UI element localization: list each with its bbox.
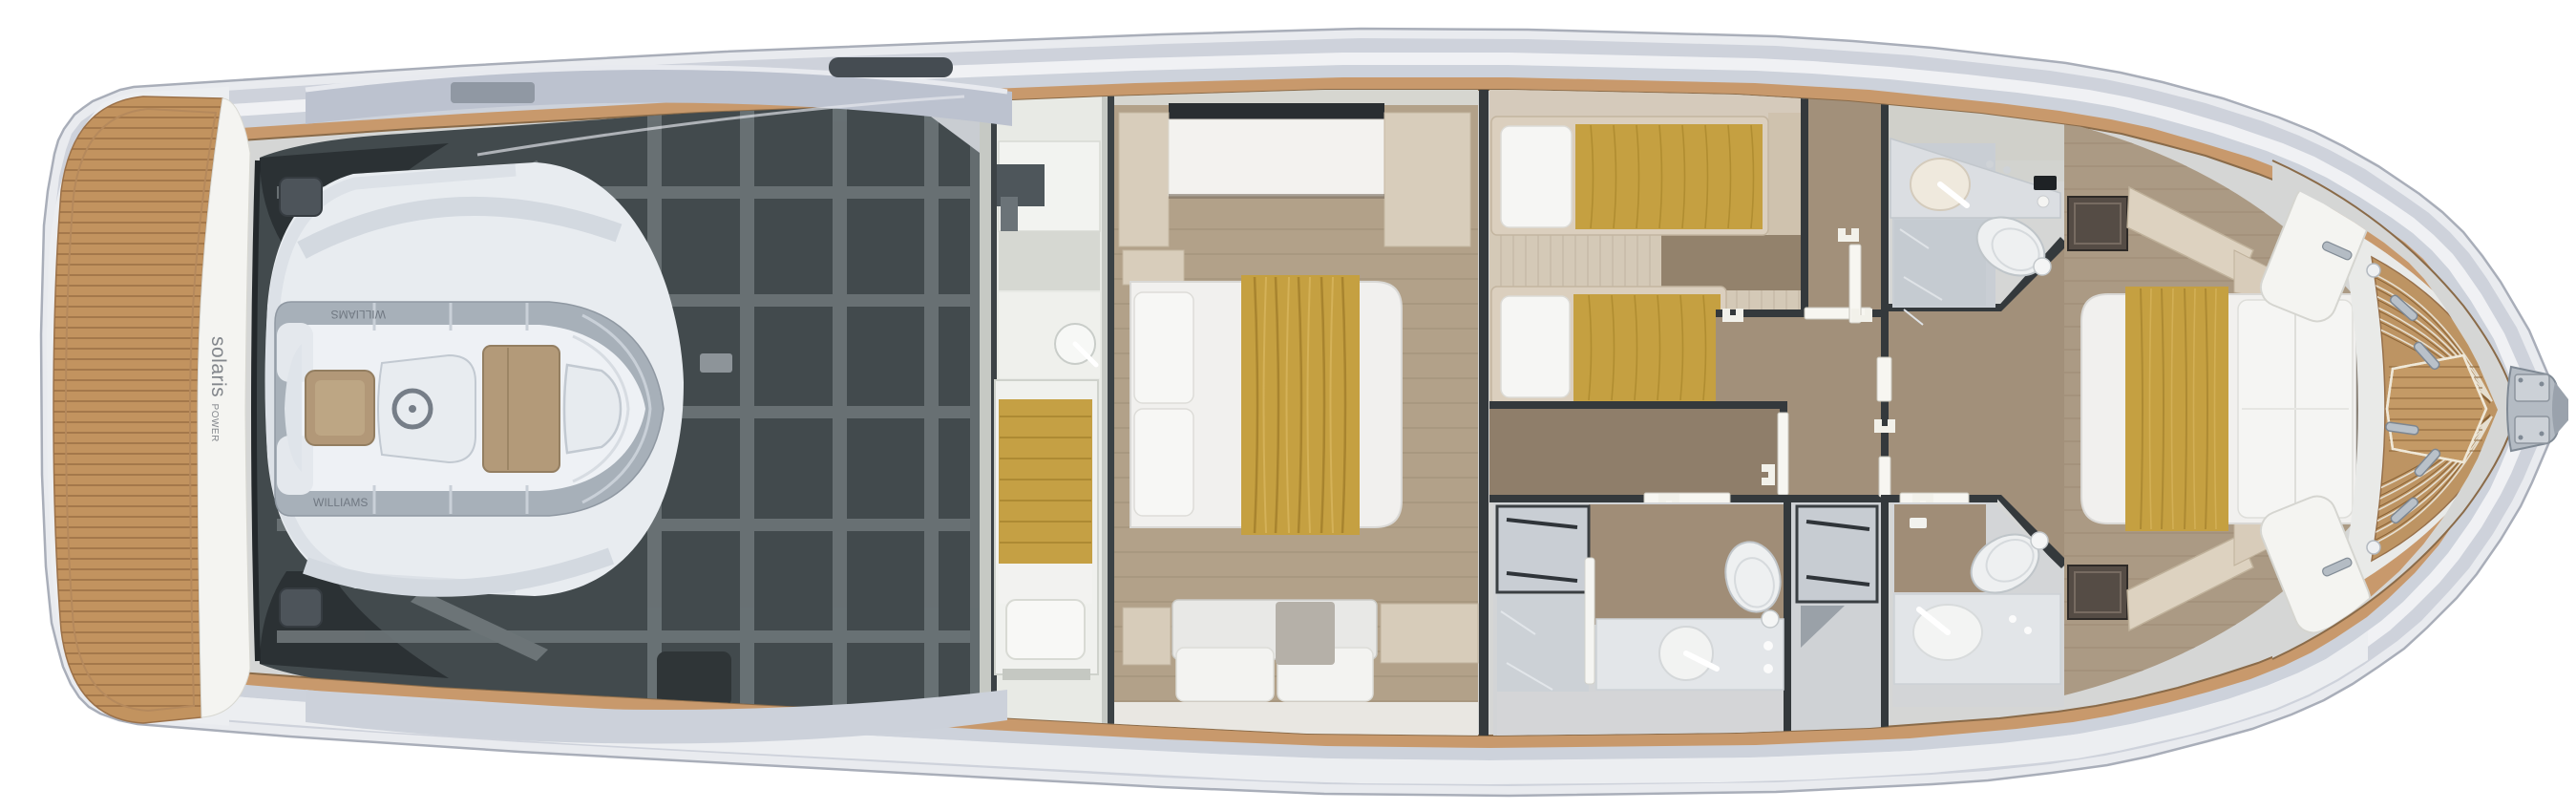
svg-text:WILLIAMS: WILLIAMS xyxy=(313,496,368,509)
svg-text:WILLIAMS: WILLIAMS xyxy=(331,308,386,321)
